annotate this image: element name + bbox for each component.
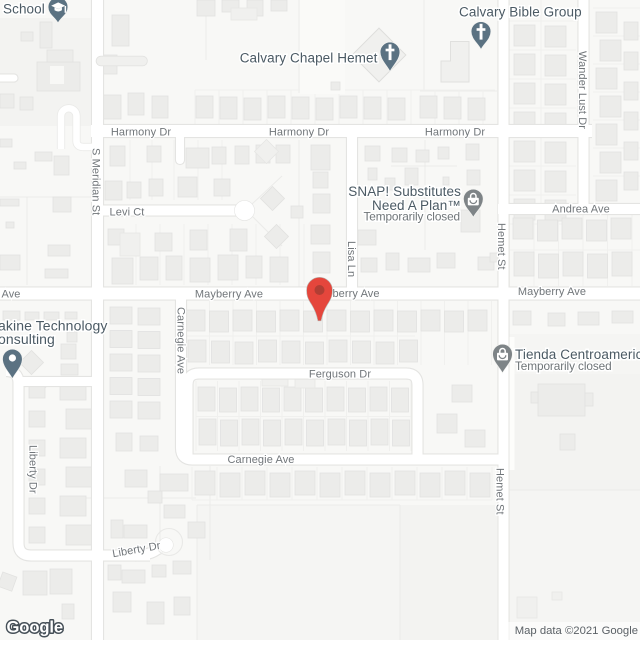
svg-text:Harmony Dr: Harmony Dr (269, 127, 330, 139)
svg-text:Levi Ct: Levi Ct (110, 207, 145, 219)
svg-text:SNAP! Substitutes: SNAP! Substitutes (348, 184, 461, 199)
svg-text:Lisa Ln: Lisa Ln (345, 241, 357, 277)
svg-text:Carnegie Ave: Carnegie Ave (175, 307, 187, 374)
svg-text:Hemet St: Hemet St (495, 223, 507, 270)
svg-text:Temporarily closed: Temporarily closed (515, 359, 612, 373)
svg-text:onsulting: onsulting (0, 331, 55, 347)
svg-text:Calvary Bible Group: Calvary Bible Group (459, 5, 582, 20)
svg-text:Ferguson Dr: Ferguson Dr (309, 369, 371, 381)
svg-text:Calvary Chapel Hemet: Calvary Chapel Hemet (240, 51, 378, 66)
svg-text:Harmony Dr: Harmony Dr (425, 127, 486, 139)
svg-text:School: School (3, 2, 45, 17)
svg-text:Andrea Ave: Andrea Ave (552, 204, 610, 216)
svg-text:Temporarily closed: Temporarily closed (363, 210, 460, 224)
svg-text:Harmony Dr: Harmony Dr (111, 127, 172, 139)
svg-text:Carnegie Ave: Carnegie Ave (227, 454, 294, 466)
svg-text:Mayberry Ave: Mayberry Ave (195, 289, 263, 301)
svg-text:Map data ©2021 Google: Map data ©2021 Google (515, 625, 638, 637)
svg-text:Ave: Ave (1, 289, 20, 301)
svg-text:S Meridian St: S Meridian St (90, 148, 102, 215)
svg-text:Wander Lust Dr: Wander Lust Dr (576, 51, 588, 129)
svg-text:Google: Google (7, 618, 64, 637)
svg-text:Hemet St: Hemet St (494, 468, 506, 515)
svg-text:Liberty Dr: Liberty Dr (27, 445, 39, 494)
svg-text:Mayberry Ave: Mayberry Ave (518, 286, 586, 298)
